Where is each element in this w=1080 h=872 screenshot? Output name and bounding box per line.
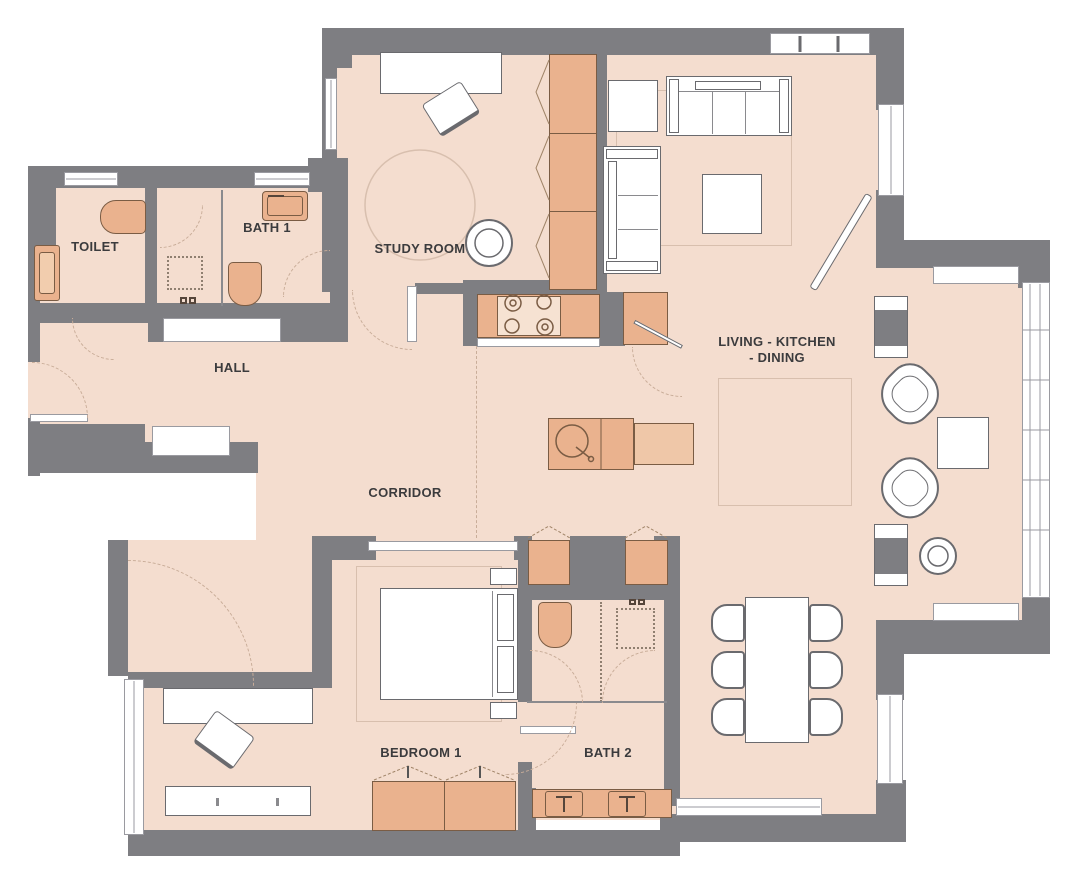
corner-side-table: [608, 80, 658, 132]
sofa-cushion-line: [618, 229, 658, 230]
window-sill: [676, 798, 822, 816]
sideboard-handle: [276, 798, 279, 806]
room-label-living-line2: - DINING: [749, 350, 805, 366]
side-table: [937, 417, 989, 469]
radiator-console: [874, 296, 908, 358]
dining-chair: [711, 651, 745, 689]
armchair-seat: [886, 370, 934, 418]
wall-segment: [145, 188, 157, 306]
room-label-toilet: TOILET: [71, 239, 119, 255]
wall-segment: [876, 620, 1050, 654]
wall-niche: [152, 426, 230, 456]
sofa-armrest: [606, 261, 658, 271]
blanket-line: [492, 591, 493, 697]
room-label-corridor: CORRIDOR: [368, 485, 441, 501]
sofa-cushion-line: [712, 92, 713, 134]
balcony-door-recess: [770, 33, 870, 54]
wall-niche: [163, 318, 281, 342]
window: [325, 78, 337, 150]
kitchen-island: [548, 418, 634, 470]
sofa-top: [666, 76, 792, 136]
wall-segment: [876, 652, 904, 700]
window: [877, 694, 903, 784]
wall-segment: [876, 240, 1050, 268]
sofa-armrest: [606, 149, 658, 159]
wall-segment: [28, 418, 40, 476]
study-desk: [380, 52, 502, 94]
bath2-sink: [608, 791, 646, 817]
wall-segment: [876, 28, 904, 110]
sofa-back-pillow: [608, 161, 617, 259]
wall-segment: [597, 292, 625, 346]
window-tall-east: [1022, 282, 1050, 598]
window: [878, 104, 904, 196]
wall-segment: [660, 814, 880, 842]
floor-transition: [476, 346, 477, 538]
bed: [380, 588, 518, 700]
bedroom-desk: [163, 688, 313, 724]
room-label-bath1: BATH 1: [243, 220, 291, 236]
kitchen-island-extension: [634, 423, 694, 465]
floor-plan: TOILET BATH 1 HALL STUDY ROOM CORRIDOR L…: [0, 0, 1080, 872]
window: [64, 172, 118, 186]
wall-segment: [312, 536, 332, 688]
sofa-cushion-line: [618, 195, 658, 196]
bath2-sink: [545, 791, 583, 817]
wall-segment: [40, 424, 145, 473]
room-label-hall: HALL: [214, 360, 250, 376]
room-label-study: STUDY ROOM: [375, 241, 466, 257]
window: [254, 172, 310, 186]
radiator-body: [875, 538, 907, 574]
sitting-area-rug: [718, 378, 852, 506]
wardrobe-divider: [444, 782, 445, 830]
bathtub-inner: [267, 196, 303, 216]
bath2-glass-divider: [600, 602, 602, 702]
wall-segment: [876, 190, 904, 242]
dining-chair: [809, 698, 843, 736]
pillow: [497, 594, 514, 641]
bedroom-sideboard: [165, 786, 311, 816]
coffee-table: [702, 174, 762, 234]
window: [124, 679, 144, 835]
toilet-fixture-toilet-room: [100, 200, 146, 234]
room-label-bath2: BATH 2: [584, 745, 632, 761]
pillow: [497, 646, 514, 693]
corridor-closet: [528, 540, 570, 585]
radiator-body: [875, 310, 907, 346]
sink-inner: [39, 252, 55, 294]
bathtub: [262, 191, 308, 221]
sofa-cushion-line: [745, 92, 746, 134]
kitchen-counter-edge: [477, 338, 600, 347]
sofa-armrest: [779, 79, 789, 133]
sink-toilet-room: [34, 245, 60, 301]
armchair-seat: [886, 464, 934, 512]
shower-tray: [616, 608, 655, 649]
bedroom-wardrobe: [372, 781, 516, 831]
toilet-fixture-bath1: [228, 262, 262, 306]
sofa-headrest: [695, 81, 761, 90]
hob-panel: [497, 296, 561, 336]
shower-tray: [167, 256, 203, 290]
wall-segment: [128, 830, 680, 856]
wall-segment: [108, 540, 128, 676]
toilet-fixture-bath2: [538, 602, 572, 648]
wall-segment: [876, 780, 906, 842]
dining-chair: [711, 604, 745, 642]
wardrobe-shelf-line: [550, 211, 596, 212]
wall-niche: [933, 266, 1019, 284]
sofa-left: [603, 146, 661, 274]
dining-chair: [809, 651, 843, 689]
bedroom-sliding-door-leaf: [368, 541, 518, 551]
dining-chair: [711, 698, 745, 736]
radiator-console: [874, 524, 908, 586]
bath1-divider: [221, 190, 223, 306]
sofa-armrest: [669, 79, 679, 133]
wall-niche: [933, 603, 1019, 621]
dining-chair: [809, 604, 843, 642]
sofa-back-line: [679, 91, 779, 92]
wall-segment: [415, 283, 465, 294]
corridor-closet: [625, 540, 668, 585]
sideboard-handle: [216, 798, 219, 806]
room-label-bedroom1: BEDROOM 1: [380, 745, 461, 761]
study-wardrobe: [549, 54, 597, 290]
dining-table: [745, 597, 809, 743]
nightstand: [490, 568, 517, 585]
wardrobe-shelf-line: [550, 133, 596, 134]
room-label-living-line1: LIVING - KITCHEN: [718, 334, 835, 350]
